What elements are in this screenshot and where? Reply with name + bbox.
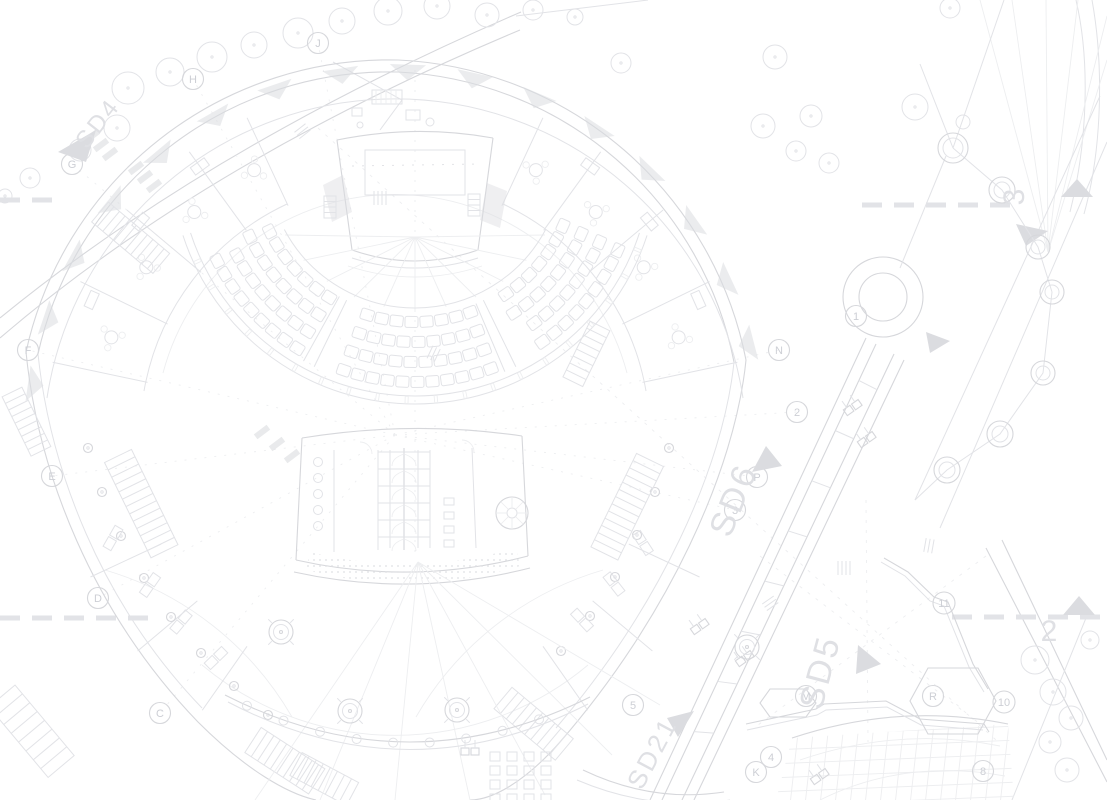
seat bbox=[420, 316, 434, 328]
rail-post bbox=[566, 340, 573, 347]
plumbing-fixtures bbox=[314, 440, 475, 547]
stall-door bbox=[392, 505, 404, 517]
site-axes bbox=[318, 60, 996, 742]
section-marker-arrow bbox=[752, 446, 782, 472]
seat bbox=[426, 375, 440, 387]
chair bbox=[672, 324, 678, 330]
seat bbox=[374, 312, 389, 325]
column bbox=[197, 649, 206, 658]
bench bbox=[603, 572, 625, 596]
chair bbox=[523, 162, 529, 168]
truss-mark bbox=[62, 239, 84, 271]
grid-bubble-label: 2 bbox=[794, 407, 800, 419]
section-marker: SD6 bbox=[702, 446, 782, 542]
rail-post bbox=[346, 387, 351, 395]
toilet bbox=[314, 522, 323, 531]
stair-run bbox=[468, 194, 480, 216]
section-marker-arrow bbox=[856, 645, 881, 674]
seat bbox=[388, 355, 402, 367]
truss-mark bbox=[143, 139, 171, 163]
seat bbox=[397, 336, 411, 348]
tree bbox=[1040, 679, 1066, 705]
annotation-text-mark bbox=[924, 538, 934, 553]
desk bbox=[84, 290, 99, 309]
bench bbox=[139, 573, 160, 598]
desk bbox=[691, 290, 706, 309]
urinal bbox=[444, 540, 454, 547]
column bbox=[651, 488, 660, 497]
bench bbox=[103, 525, 123, 550]
seat bbox=[448, 351, 463, 364]
seat bbox=[262, 223, 278, 240]
site-roads bbox=[0, 0, 1107, 800]
grid-bubble-label: R bbox=[929, 691, 937, 703]
tree bbox=[763, 45, 787, 69]
matchline-number: 2 bbox=[1041, 615, 1058, 648]
bench bbox=[204, 646, 228, 669]
grid-bubble-label: N bbox=[775, 345, 783, 357]
seat bbox=[610, 242, 625, 258]
blueprint-sheet: GHJFEDCN2P3111M4KR1085 SD4SD6SD5SD21 32 bbox=[0, 0, 1107, 800]
seat bbox=[483, 361, 499, 376]
table bbox=[529, 164, 542, 177]
roof-truss-marks bbox=[26, 64, 759, 401]
grid-bubble-label: C bbox=[156, 708, 164, 720]
grid-bubble: N bbox=[769, 340, 790, 361]
rail-post bbox=[405, 396, 408, 403]
tile-chair bbox=[541, 794, 551, 800]
tree bbox=[1081, 631, 1099, 649]
seat bbox=[350, 368, 365, 382]
table bbox=[589, 206, 602, 219]
annex-walls bbox=[746, 558, 996, 734]
tile-chair bbox=[490, 752, 500, 761]
table bbox=[105, 331, 118, 344]
seat bbox=[405, 316, 418, 327]
tile-chair bbox=[490, 766, 500, 775]
seat bbox=[351, 326, 367, 340]
matchline-number: 3 bbox=[998, 189, 1031, 206]
seat bbox=[441, 332, 456, 345]
chair bbox=[119, 332, 125, 338]
survey-target bbox=[269, 620, 293, 644]
section-marker-label: SD4 bbox=[70, 93, 126, 154]
seat bbox=[476, 342, 492, 357]
truss-mark bbox=[684, 205, 707, 235]
stall-door bbox=[392, 454, 404, 466]
equipment-symbol bbox=[686, 612, 709, 635]
chair bbox=[202, 212, 208, 218]
table bbox=[248, 164, 261, 177]
grid-bubble-label: 4 bbox=[768, 752, 774, 764]
tile-room bbox=[490, 712, 1025, 800]
section-marker: SD21 bbox=[621, 711, 694, 794]
truss-mark bbox=[98, 185, 122, 213]
truss-mark bbox=[584, 116, 614, 139]
chair bbox=[636, 274, 642, 280]
tile-chair bbox=[541, 766, 551, 775]
tree bbox=[1059, 706, 1083, 730]
seat bbox=[242, 228, 257, 244]
seat bbox=[412, 336, 425, 347]
stage-sightlines bbox=[285, 235, 545, 310]
column bbox=[98, 488, 107, 497]
planter-circle bbox=[843, 257, 923, 337]
tree bbox=[800, 105, 822, 127]
seat bbox=[358, 349, 373, 363]
grid-bubble: 1 bbox=[846, 306, 867, 327]
seat bbox=[359, 308, 375, 322]
seat bbox=[574, 226, 589, 242]
seat bbox=[411, 376, 424, 387]
rail-post bbox=[425, 738, 434, 747]
grid-bubble: H bbox=[183, 69, 204, 90]
tree bbox=[819, 153, 839, 173]
chair bbox=[533, 178, 539, 184]
grid-bubble: K bbox=[746, 762, 767, 783]
grid-bubble: 10 bbox=[993, 691, 1015, 713]
tree bbox=[156, 58, 184, 86]
seat bbox=[419, 356, 433, 368]
survey-target bbox=[338, 699, 362, 723]
seat bbox=[448, 310, 463, 324]
chair bbox=[651, 263, 657, 269]
toilet bbox=[314, 474, 323, 483]
seat bbox=[365, 371, 380, 384]
tree bbox=[1039, 731, 1061, 753]
stair-run bbox=[591, 453, 664, 560]
rail-post bbox=[389, 738, 398, 747]
stair-run bbox=[0, 685, 74, 777]
seat bbox=[209, 253, 225, 270]
annotation-text-mark bbox=[838, 561, 850, 575]
stall-door bbox=[404, 539, 416, 551]
seat bbox=[344, 345, 360, 360]
toilet bbox=[314, 458, 323, 467]
stall-door bbox=[404, 505, 416, 517]
rail-post bbox=[318, 377, 323, 385]
stage-tower-hatch bbox=[480, 183, 507, 228]
tree bbox=[611, 53, 631, 73]
seat bbox=[555, 218, 570, 234]
seat bbox=[373, 353, 388, 366]
tile-chair bbox=[507, 752, 517, 761]
truss-mark bbox=[739, 325, 759, 360]
chair bbox=[590, 220, 596, 226]
truss-mark bbox=[38, 300, 59, 334]
seat bbox=[455, 329, 470, 343]
tree bbox=[523, 0, 543, 20]
grid-bubble: R bbox=[923, 686, 944, 707]
matchline-number-labels: 32 bbox=[998, 189, 1057, 648]
rail-post bbox=[463, 391, 467, 398]
rail-post bbox=[434, 395, 438, 402]
spiral-stair bbox=[496, 497, 528, 529]
tile-chair bbox=[490, 780, 500, 789]
paving-stipple-band bbox=[306, 548, 520, 583]
tree bbox=[567, 9, 583, 25]
tile-chair bbox=[524, 766, 534, 775]
seat bbox=[426, 335, 440, 347]
pavement-dash bbox=[284, 449, 300, 463]
chair bbox=[189, 198, 195, 204]
table bbox=[188, 206, 201, 219]
grid-bubble: 8 bbox=[973, 761, 994, 782]
direction-arrow bbox=[926, 332, 950, 353]
grid-bubble-label: K bbox=[752, 767, 760, 779]
grid-bubble-label: H bbox=[189, 74, 197, 86]
rail-post bbox=[543, 358, 549, 366]
seat bbox=[592, 234, 607, 250]
matchline-arrow bbox=[1063, 596, 1095, 615]
survey-targets bbox=[268, 619, 759, 723]
floor-plan-drawing: GHJFEDCN2P3111M4KR1085 SD4SD6SD5SD21 32 bbox=[0, 0, 1107, 800]
seat bbox=[455, 370, 470, 384]
seat bbox=[389, 315, 403, 327]
chair bbox=[603, 205, 609, 211]
tile-chair bbox=[507, 794, 517, 800]
stall-door bbox=[392, 488, 404, 500]
rail-post bbox=[267, 348, 274, 355]
urinal bbox=[444, 512, 454, 519]
chair bbox=[137, 273, 143, 279]
truss-mark bbox=[639, 156, 665, 181]
grid-bubble-label: J bbox=[315, 38, 321, 50]
stair-run bbox=[563, 321, 610, 386]
bollard-chain bbox=[934, 133, 1064, 483]
survey-target bbox=[735, 635, 759, 659]
pavement-dash bbox=[102, 147, 118, 161]
tree bbox=[786, 141, 806, 161]
rail-post bbox=[605, 298, 612, 305]
tree bbox=[1055, 758, 1079, 782]
stall-door bbox=[392, 471, 404, 483]
chair bbox=[241, 172, 247, 178]
stall-door bbox=[404, 471, 416, 483]
annex-corridor bbox=[650, 0, 1052, 800]
grid-radial-lines bbox=[28, 43, 797, 713]
grid-bubble-label: 10 bbox=[998, 697, 1010, 709]
chair bbox=[542, 161, 548, 167]
tree bbox=[197, 42, 227, 72]
equipment-symbol bbox=[853, 425, 876, 448]
grid-bubble: C bbox=[150, 703, 171, 724]
tree bbox=[112, 72, 144, 104]
pavement-dash bbox=[146, 179, 162, 193]
hex-room bbox=[910, 668, 996, 734]
rail-post bbox=[245, 329, 252, 336]
equipment-symbol bbox=[839, 393, 862, 416]
rail-post bbox=[292, 364, 298, 372]
stall-door bbox=[404, 488, 416, 500]
stall-door bbox=[404, 454, 416, 466]
seat bbox=[462, 347, 477, 361]
tree bbox=[475, 3, 499, 27]
seat bbox=[469, 324, 485, 339]
tree bbox=[241, 32, 267, 58]
seat bbox=[336, 363, 352, 378]
grid-bubble-label: E bbox=[48, 471, 55, 483]
grid-bubble: 5 bbox=[623, 695, 644, 716]
chair bbox=[260, 173, 266, 179]
stall-door bbox=[392, 522, 404, 534]
stall-door bbox=[392, 539, 404, 551]
chair bbox=[584, 201, 590, 207]
rail-post bbox=[621, 273, 629, 279]
grid-bubble-label: 5 bbox=[630, 700, 636, 712]
rail-post bbox=[194, 259, 202, 265]
chair bbox=[668, 342, 674, 348]
truss-mark bbox=[523, 87, 556, 108]
seat bbox=[381, 334, 395, 347]
grid-bubble-label: G bbox=[68, 159, 77, 171]
section-detail-markers: SD4SD6SD5SD21 bbox=[58, 93, 881, 794]
chair bbox=[183, 216, 189, 222]
tile-chair bbox=[541, 780, 551, 789]
grid-bubble: 2 bbox=[787, 402, 808, 423]
tree bbox=[20, 168, 40, 188]
grid-bubble-label: F bbox=[25, 345, 32, 357]
urinal bbox=[444, 498, 454, 505]
seat bbox=[462, 305, 478, 320]
seat bbox=[366, 330, 381, 344]
rail-post bbox=[225, 308, 232, 315]
table bbox=[637, 261, 650, 274]
section-marker-label: SD21 bbox=[621, 712, 684, 794]
truss-mark bbox=[717, 262, 739, 295]
rail-post bbox=[634, 247, 642, 252]
chair bbox=[105, 345, 111, 351]
annotation-text-mark bbox=[374, 191, 386, 205]
column bbox=[167, 613, 176, 622]
grid-bubble: J bbox=[308, 33, 329, 54]
tree bbox=[424, 0, 450, 19]
tree bbox=[902, 94, 928, 120]
seat bbox=[585, 247, 601, 264]
stall-door bbox=[404, 522, 416, 534]
grid-bubble-label: 11 bbox=[938, 598, 949, 610]
grid-bubble-label: 1 bbox=[853, 311, 859, 323]
grid-bubble: E bbox=[42, 466, 63, 487]
table bbox=[672, 331, 685, 344]
column bbox=[84, 444, 93, 453]
tree bbox=[283, 18, 313, 48]
door-swing bbox=[360, 442, 372, 454]
tree bbox=[1021, 646, 1049, 674]
tile-chair bbox=[524, 780, 534, 789]
rail-post bbox=[208, 284, 216, 290]
urinal bbox=[444, 526, 454, 533]
pavement-dash bbox=[269, 437, 285, 451]
toilet bbox=[314, 506, 323, 515]
grid-bubble-label: D bbox=[94, 593, 102, 605]
tree bbox=[751, 114, 775, 138]
rail-post bbox=[375, 393, 379, 400]
tree bbox=[329, 8, 355, 34]
lower-fan-lines bbox=[255, 562, 660, 800]
chair bbox=[686, 336, 692, 342]
pavement-dash bbox=[137, 170, 153, 184]
room-furniture bbox=[84, 156, 706, 351]
rail-post bbox=[517, 372, 523, 380]
grid-bubble-label: 8 bbox=[980, 766, 986, 778]
survey-target bbox=[445, 698, 469, 722]
pavement-dash bbox=[128, 161, 144, 175]
chair bbox=[101, 326, 107, 332]
seat bbox=[380, 374, 394, 387]
tile-chair bbox=[524, 794, 534, 800]
toilet bbox=[314, 490, 323, 499]
stair-run bbox=[290, 753, 359, 800]
rail-post bbox=[491, 383, 496, 391]
seat bbox=[469, 366, 485, 380]
tile-chair bbox=[507, 766, 517, 775]
section-marker-label: SD6 bbox=[702, 458, 765, 542]
seat bbox=[396, 376, 410, 388]
seat bbox=[434, 313, 449, 326]
pavement-dash bbox=[254, 425, 270, 439]
truss-mark bbox=[322, 66, 358, 84]
truss-mark bbox=[197, 104, 229, 126]
section-marker-label: SD5 bbox=[792, 631, 848, 713]
stair-run bbox=[105, 449, 178, 557]
seat bbox=[440, 373, 454, 386]
